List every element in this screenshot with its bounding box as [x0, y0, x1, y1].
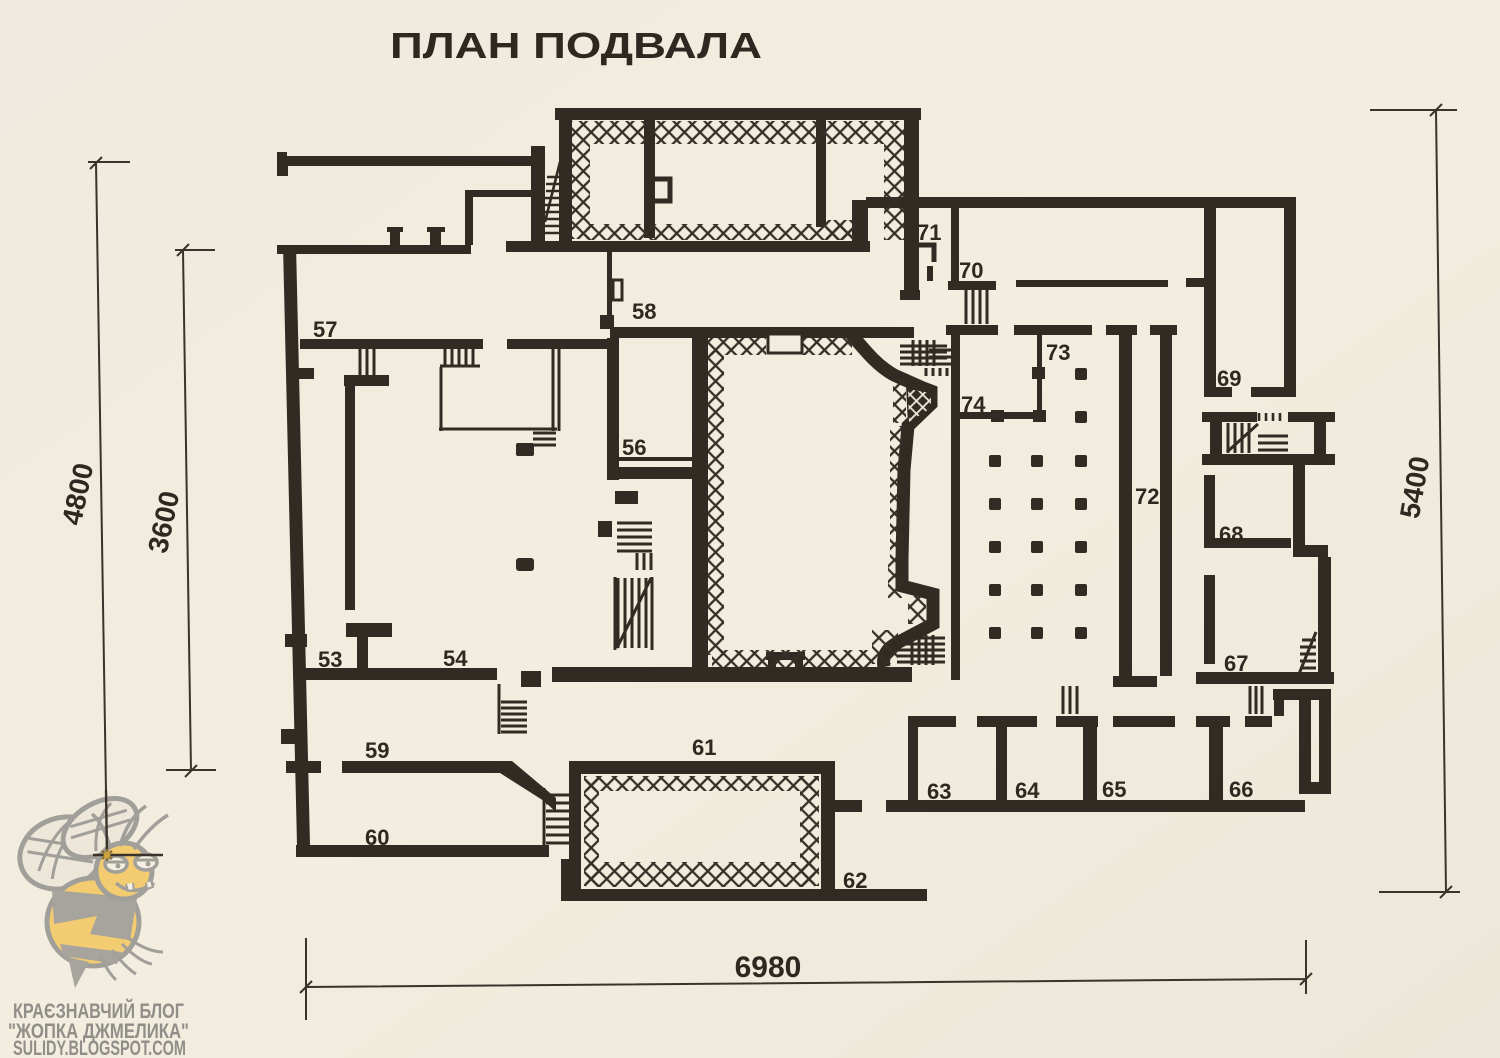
svg-text:72: 72: [1135, 484, 1159, 509]
svg-text:69: 69: [1217, 366, 1241, 391]
svg-text:59: 59: [365, 738, 389, 763]
svg-text:6980: 6980: [735, 951, 802, 984]
svg-text:57: 57: [313, 317, 337, 342]
svg-text:70: 70: [959, 258, 983, 283]
svg-text:74: 74: [961, 392, 986, 417]
svg-text:54: 54: [443, 646, 468, 671]
svg-text:58: 58: [632, 299, 656, 324]
svg-text:68: 68: [1219, 522, 1243, 547]
svg-text:56: 56: [622, 435, 646, 460]
svg-text:SULIDY.BLOGSPOT.COM: SULIDY.BLOGSPOT.COM: [13, 1037, 186, 1058]
svg-text:63: 63: [927, 779, 951, 804]
svg-text:66: 66: [1229, 777, 1253, 802]
svg-text:65: 65: [1102, 777, 1126, 802]
svg-text:73: 73: [1046, 340, 1070, 365]
svg-text:53: 53: [318, 647, 342, 672]
svg-text:64: 64: [1015, 778, 1040, 803]
svg-text:61: 61: [692, 735, 716, 760]
svg-text:67: 67: [1224, 651, 1248, 676]
svg-text:62: 62: [843, 868, 867, 893]
svg-text:71: 71: [917, 220, 941, 245]
svg-text:60: 60: [365, 825, 389, 850]
svg-text:ПЛАН ПОДВАЛА: ПЛАН ПОДВАЛА: [390, 25, 762, 66]
